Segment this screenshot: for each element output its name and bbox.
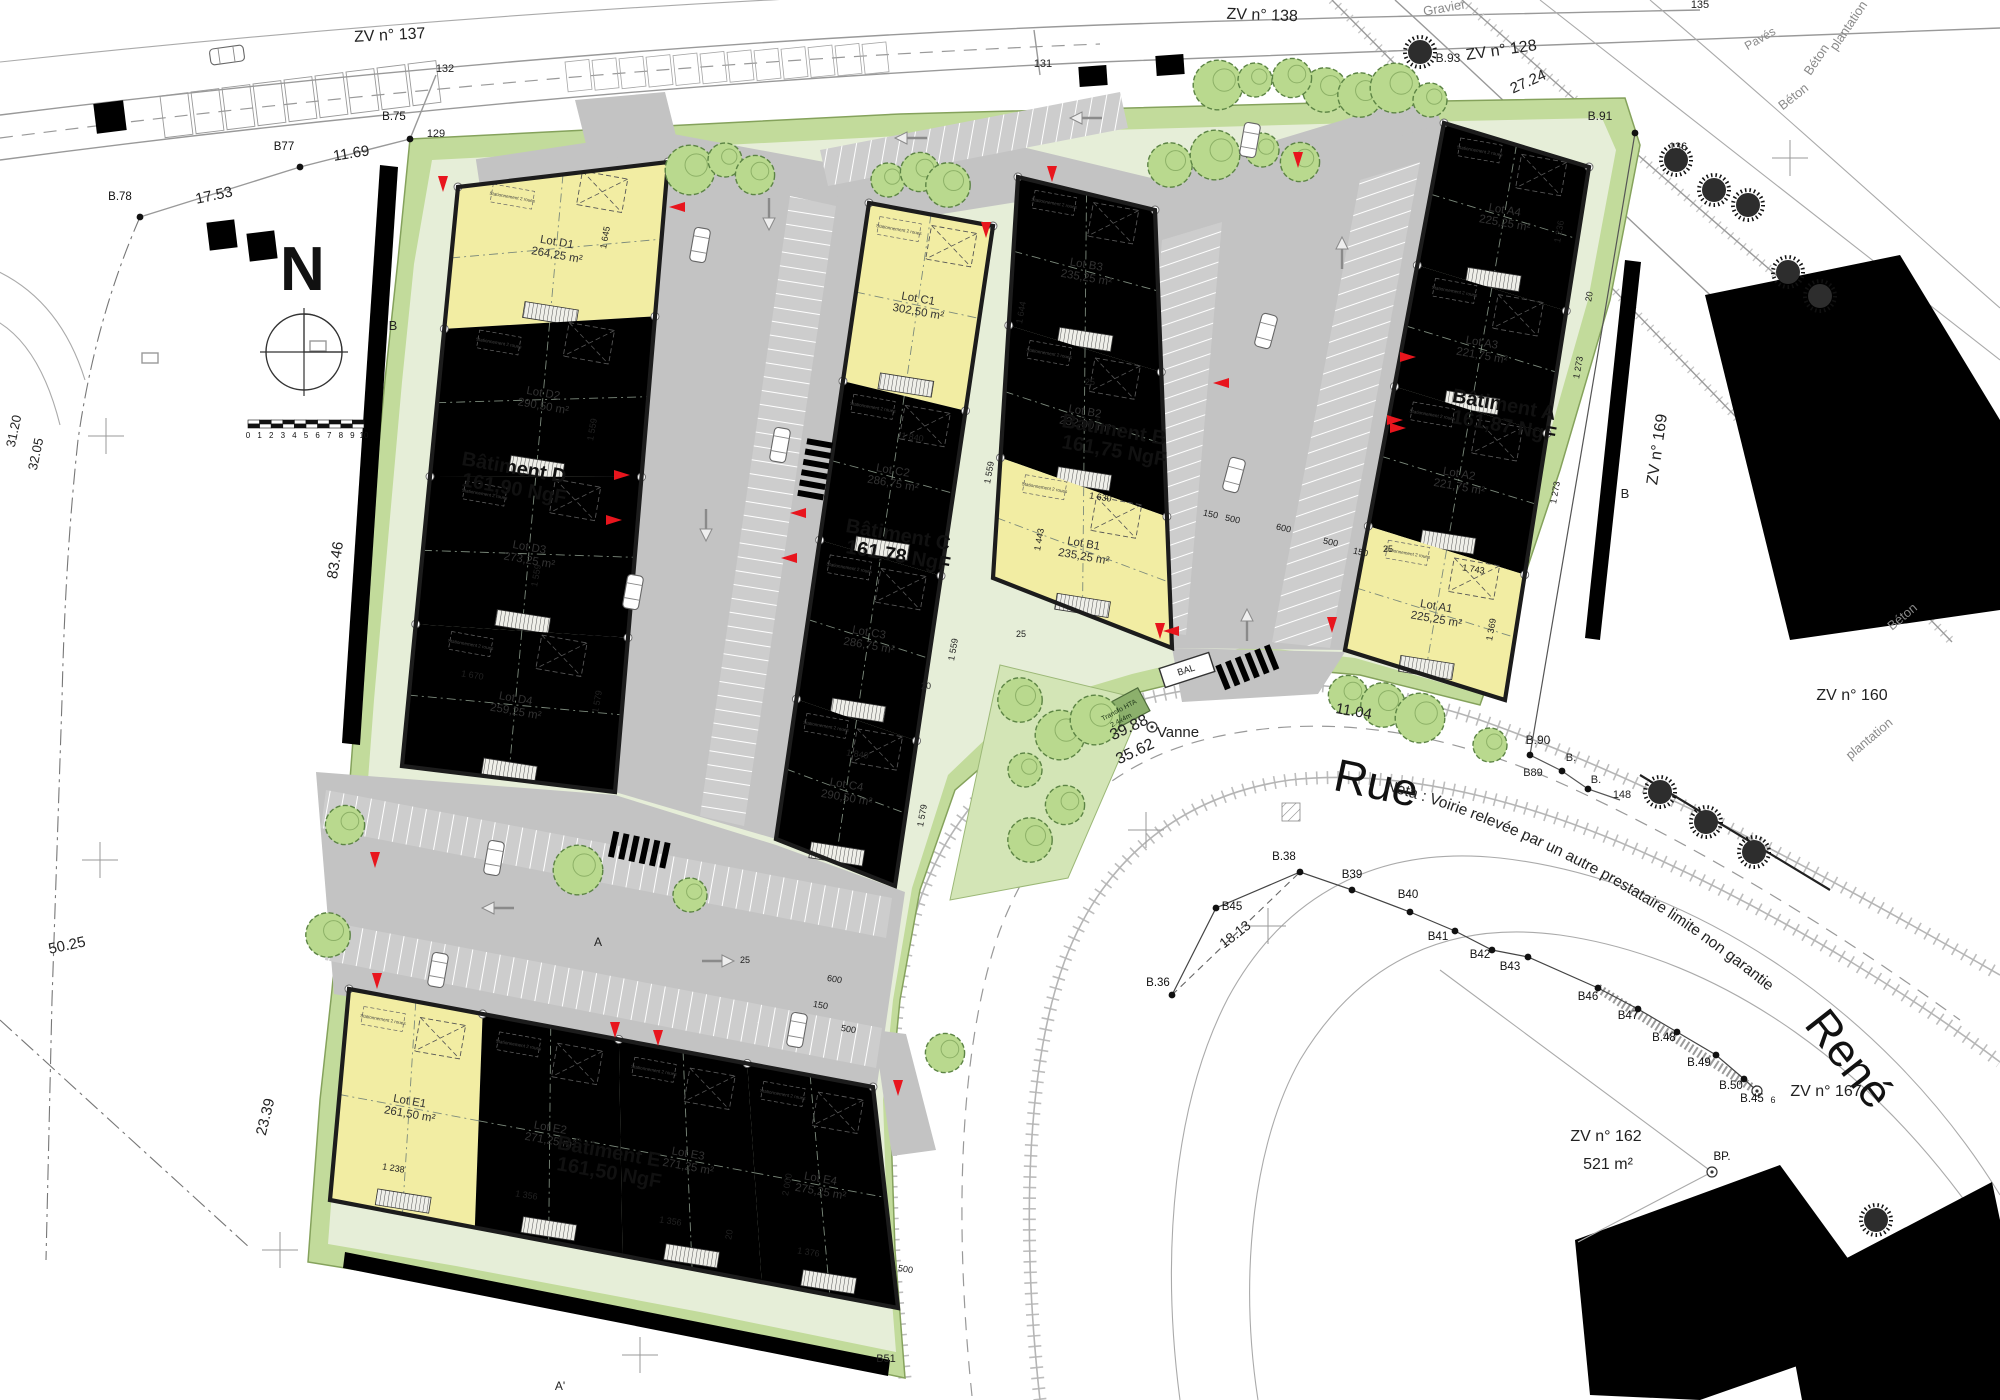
survey-point-label: B41 (1428, 931, 1448, 943)
dark-tree (1736, 193, 1760, 217)
scale-tick: 7 (327, 431, 332, 440)
scale-bar: 012345678910 (246, 420, 369, 440)
annotation: 135 (1691, 0, 1709, 11)
scale-segment (306, 420, 318, 424)
tree (1008, 753, 1042, 787)
survey-cross (1128, 812, 1164, 848)
survey-point (1213, 905, 1220, 912)
scale-tick: 4 (292, 431, 297, 440)
survey-point-label: B.78 (108, 191, 132, 203)
tree (926, 163, 970, 207)
survey-cross (262, 1232, 298, 1268)
dark-tree (1694, 810, 1718, 834)
tree (1473, 728, 1507, 762)
tree (1370, 63, 1420, 113)
scale-segment (271, 424, 283, 428)
north-letter: N (280, 235, 325, 304)
tree (1008, 818, 1052, 862)
scale-tick: 3 (281, 431, 286, 440)
existing-buildings (1575, 255, 2000, 1400)
dimension: 25 (740, 955, 750, 965)
north-arrow: N (260, 235, 348, 396)
tree (1190, 130, 1240, 180)
scale-segment (341, 424, 353, 428)
tree (871, 163, 905, 197)
scale-segment (352, 424, 364, 428)
annotation: 136 (1669, 141, 1687, 153)
scale-tick: 9 (350, 431, 355, 440)
annotation: 132 (436, 63, 454, 75)
survey-point-label: BP. (1713, 1151, 1730, 1163)
tree (735, 155, 774, 194)
annotation: 23.39 (253, 1097, 279, 1138)
annotation: 31.20 (3, 414, 24, 449)
car (209, 45, 245, 66)
annotation: B.90 (1526, 733, 1551, 747)
scale-segment (294, 424, 306, 428)
scale-tick: 5 (304, 431, 309, 440)
dark-tree (1864, 1208, 1888, 1232)
annotation: B51 (876, 1353, 896, 1365)
drain-grate (1282, 803, 1300, 821)
survey-point (137, 214, 144, 221)
parking-bay (673, 53, 700, 85)
annotation: 11.69 (332, 142, 371, 164)
car-body (209, 45, 245, 66)
dimension: 25 (1383, 544, 1393, 554)
dark-tree (1742, 840, 1766, 864)
annotation: B (389, 318, 398, 333)
tree (998, 678, 1042, 722)
survey-cross (622, 1337, 658, 1373)
tree (1272, 58, 1311, 97)
survey-point (1527, 752, 1534, 759)
scale-tick: 6 (315, 431, 320, 440)
survey-point (1559, 768, 1566, 775)
survey-point-label: B.45 (1740, 1093, 1764, 1105)
parking-bay (160, 93, 193, 138)
tree (665, 145, 715, 195)
parking-bay (835, 43, 862, 75)
annotation: B.91 (1588, 109, 1613, 123)
annotation: 27.24 (1508, 66, 1549, 97)
parking-bay (253, 81, 286, 126)
dimension: 25 (1016, 629, 1026, 639)
parking-bay (565, 59, 592, 91)
parking-bay (727, 50, 754, 82)
tree (1148, 143, 1192, 187)
survey-cross (1772, 140, 1808, 176)
annotation: 131 (1034, 58, 1052, 70)
dark-tree (1702, 178, 1726, 202)
survey-point-label: B43 (1500, 961, 1520, 973)
dark-tree (1648, 780, 1672, 804)
annotation: 521 m² (1583, 1156, 1633, 1173)
dark-tree (1808, 284, 1832, 308)
annotation: plantation (1843, 715, 1896, 763)
utility-box (142, 353, 158, 363)
annotation: ZV n° 128 (1465, 37, 1538, 64)
dimension: 500 (897, 1263, 914, 1275)
survey-cross (82, 842, 118, 878)
survey-point (407, 136, 414, 143)
circled-point-dot (1710, 1170, 1713, 1173)
parking-bay (862, 42, 889, 74)
scale-segment (352, 420, 364, 424)
survey-point-label: B40 (1398, 889, 1418, 901)
survey-point (1713, 1052, 1720, 1059)
annotation: ZV n° 169 (1644, 413, 1671, 486)
scale-segment (306, 424, 318, 428)
survey-point (1632, 130, 1639, 137)
survey-point (1349, 887, 1356, 894)
utility-box (310, 341, 326, 351)
annotation: ZV n° 162 (1570, 1128, 1641, 1145)
survey-point-label: B45 (1222, 901, 1242, 913)
survey-point-label: B.75 (382, 111, 406, 123)
survey-point (1297, 869, 1304, 876)
scale-segment (260, 424, 272, 428)
survey-point (1585, 786, 1592, 793)
scale-segment (318, 424, 330, 428)
dimension: 20 (921, 681, 931, 691)
annotation: B.93 (1436, 51, 1461, 65)
annotation: B. (1566, 752, 1576, 764)
scale-segment (318, 420, 330, 424)
annotation: B (1621, 486, 1630, 501)
hatched-box (206, 219, 237, 250)
dimension: 20 (723, 1229, 735, 1241)
annotation: 129 (427, 128, 445, 140)
dimension: 25 (1085, 377, 1095, 387)
annotation: plantation (1826, 0, 1870, 53)
scale-tick: 10 (360, 431, 369, 440)
annotation: B. (1591, 774, 1601, 786)
scale-tick: 1 (257, 431, 262, 440)
building-B: Stationnement 2 rouesLot B3235,25 m²Stat… (993, 173, 1172, 648)
survey-point-label: B39 (1342, 869, 1362, 881)
annotation: 50.25 (47, 933, 87, 957)
survey-point-label: B46 (1578, 991, 1598, 1003)
survey-point-label: B.49 (1687, 1057, 1711, 1069)
survey-point (297, 164, 304, 171)
tree (925, 1033, 964, 1072)
tree (673, 878, 707, 912)
survey-point-label: B.38 (1272, 851, 1296, 863)
site-plan-canvas: N 012345678910 Rue René Nota : Voirie re… (0, 0, 2000, 1400)
scale-segment (329, 424, 341, 428)
annotation: ZV n° 137 (354, 25, 426, 46)
dark-tree (1776, 260, 1800, 284)
survey-point-label: B47 (1618, 1010, 1638, 1022)
survey-point (1169, 992, 1176, 999)
parking-bay (646, 55, 673, 87)
circled-point-dot (1150, 725, 1153, 728)
annotation: 18.13 (1216, 917, 1254, 951)
street-name-rue: Rue (1330, 749, 1423, 817)
annotation: ZV n° 160 (1816, 687, 1887, 704)
scale-segment (248, 424, 260, 428)
scale-segment (283, 424, 295, 428)
annotation: Vanne (1157, 724, 1199, 741)
survey-point-label: B.48 (1652, 1032, 1676, 1044)
tree (1045, 785, 1084, 824)
west-road (0, 217, 250, 1260)
annotation: 32.05 (25, 437, 46, 472)
annotation: B89 (1523, 767, 1543, 779)
parking-bay (754, 48, 781, 80)
scale-tick: 8 (339, 431, 344, 440)
tree (1413, 83, 1447, 117)
tree (306, 913, 350, 957)
tree (1395, 693, 1445, 743)
scale-segment (341, 420, 353, 424)
annotation: Béton (1801, 41, 1832, 78)
scale-segment (329, 420, 341, 424)
hatched-box (1078, 65, 1107, 87)
north-entrance (575, 92, 680, 160)
survey-point-label: B.50 (1719, 1080, 1743, 1092)
gutter-hatch (1598, 988, 1757, 1091)
annotation: 17.53 (194, 183, 234, 207)
annotation: 83.46 (324, 540, 347, 580)
dimension: 20 (1583, 291, 1595, 303)
annotation: 6 (1770, 1095, 1775, 1105)
survey-point (1407, 909, 1414, 916)
survey-point (1452, 928, 1459, 935)
tree (1193, 60, 1243, 110)
survey-cross (1250, 908, 1286, 944)
survey-point-label: B.36 (1146, 977, 1170, 989)
scale-segment (283, 420, 295, 424)
survey-point-label: B77 (274, 141, 294, 153)
annotation: A (594, 935, 602, 949)
annotation: A' (555, 1379, 565, 1393)
hatched-box (93, 100, 126, 133)
dark-tree (1408, 40, 1432, 64)
survey-cross (88, 418, 124, 454)
tree (1238, 63, 1272, 97)
parking-bay (781, 47, 808, 79)
tree (325, 805, 364, 844)
annotation: Béton (1775, 80, 1811, 113)
tree (553, 845, 603, 895)
annotation: ZV n° 138 (1226, 6, 1298, 25)
hatched-box (1155, 54, 1184, 76)
parking-bay (700, 51, 727, 83)
scale-segment (260, 420, 272, 424)
parking-bay (808, 45, 835, 77)
parking-bay (222, 85, 255, 130)
tree (1280, 142, 1319, 181)
annotation: 148 (1613, 789, 1631, 801)
scale-tick: 2 (269, 431, 274, 440)
survey-point-label: B42 (1470, 949, 1490, 961)
scale-segment (248, 420, 260, 424)
annotation: ZV n° 167 (1790, 1083, 1861, 1100)
site-plan-page: { "drawing": { "type": "plan de masse / … (0, 0, 2000, 1400)
scale-segment (294, 420, 306, 424)
parking-bay (284, 77, 317, 122)
hatched-box (246, 230, 277, 261)
scale-segment (271, 420, 283, 424)
survey-point (1525, 954, 1532, 961)
scale-tick: 0 (246, 431, 251, 440)
annotation: Pavés (1742, 24, 1778, 53)
